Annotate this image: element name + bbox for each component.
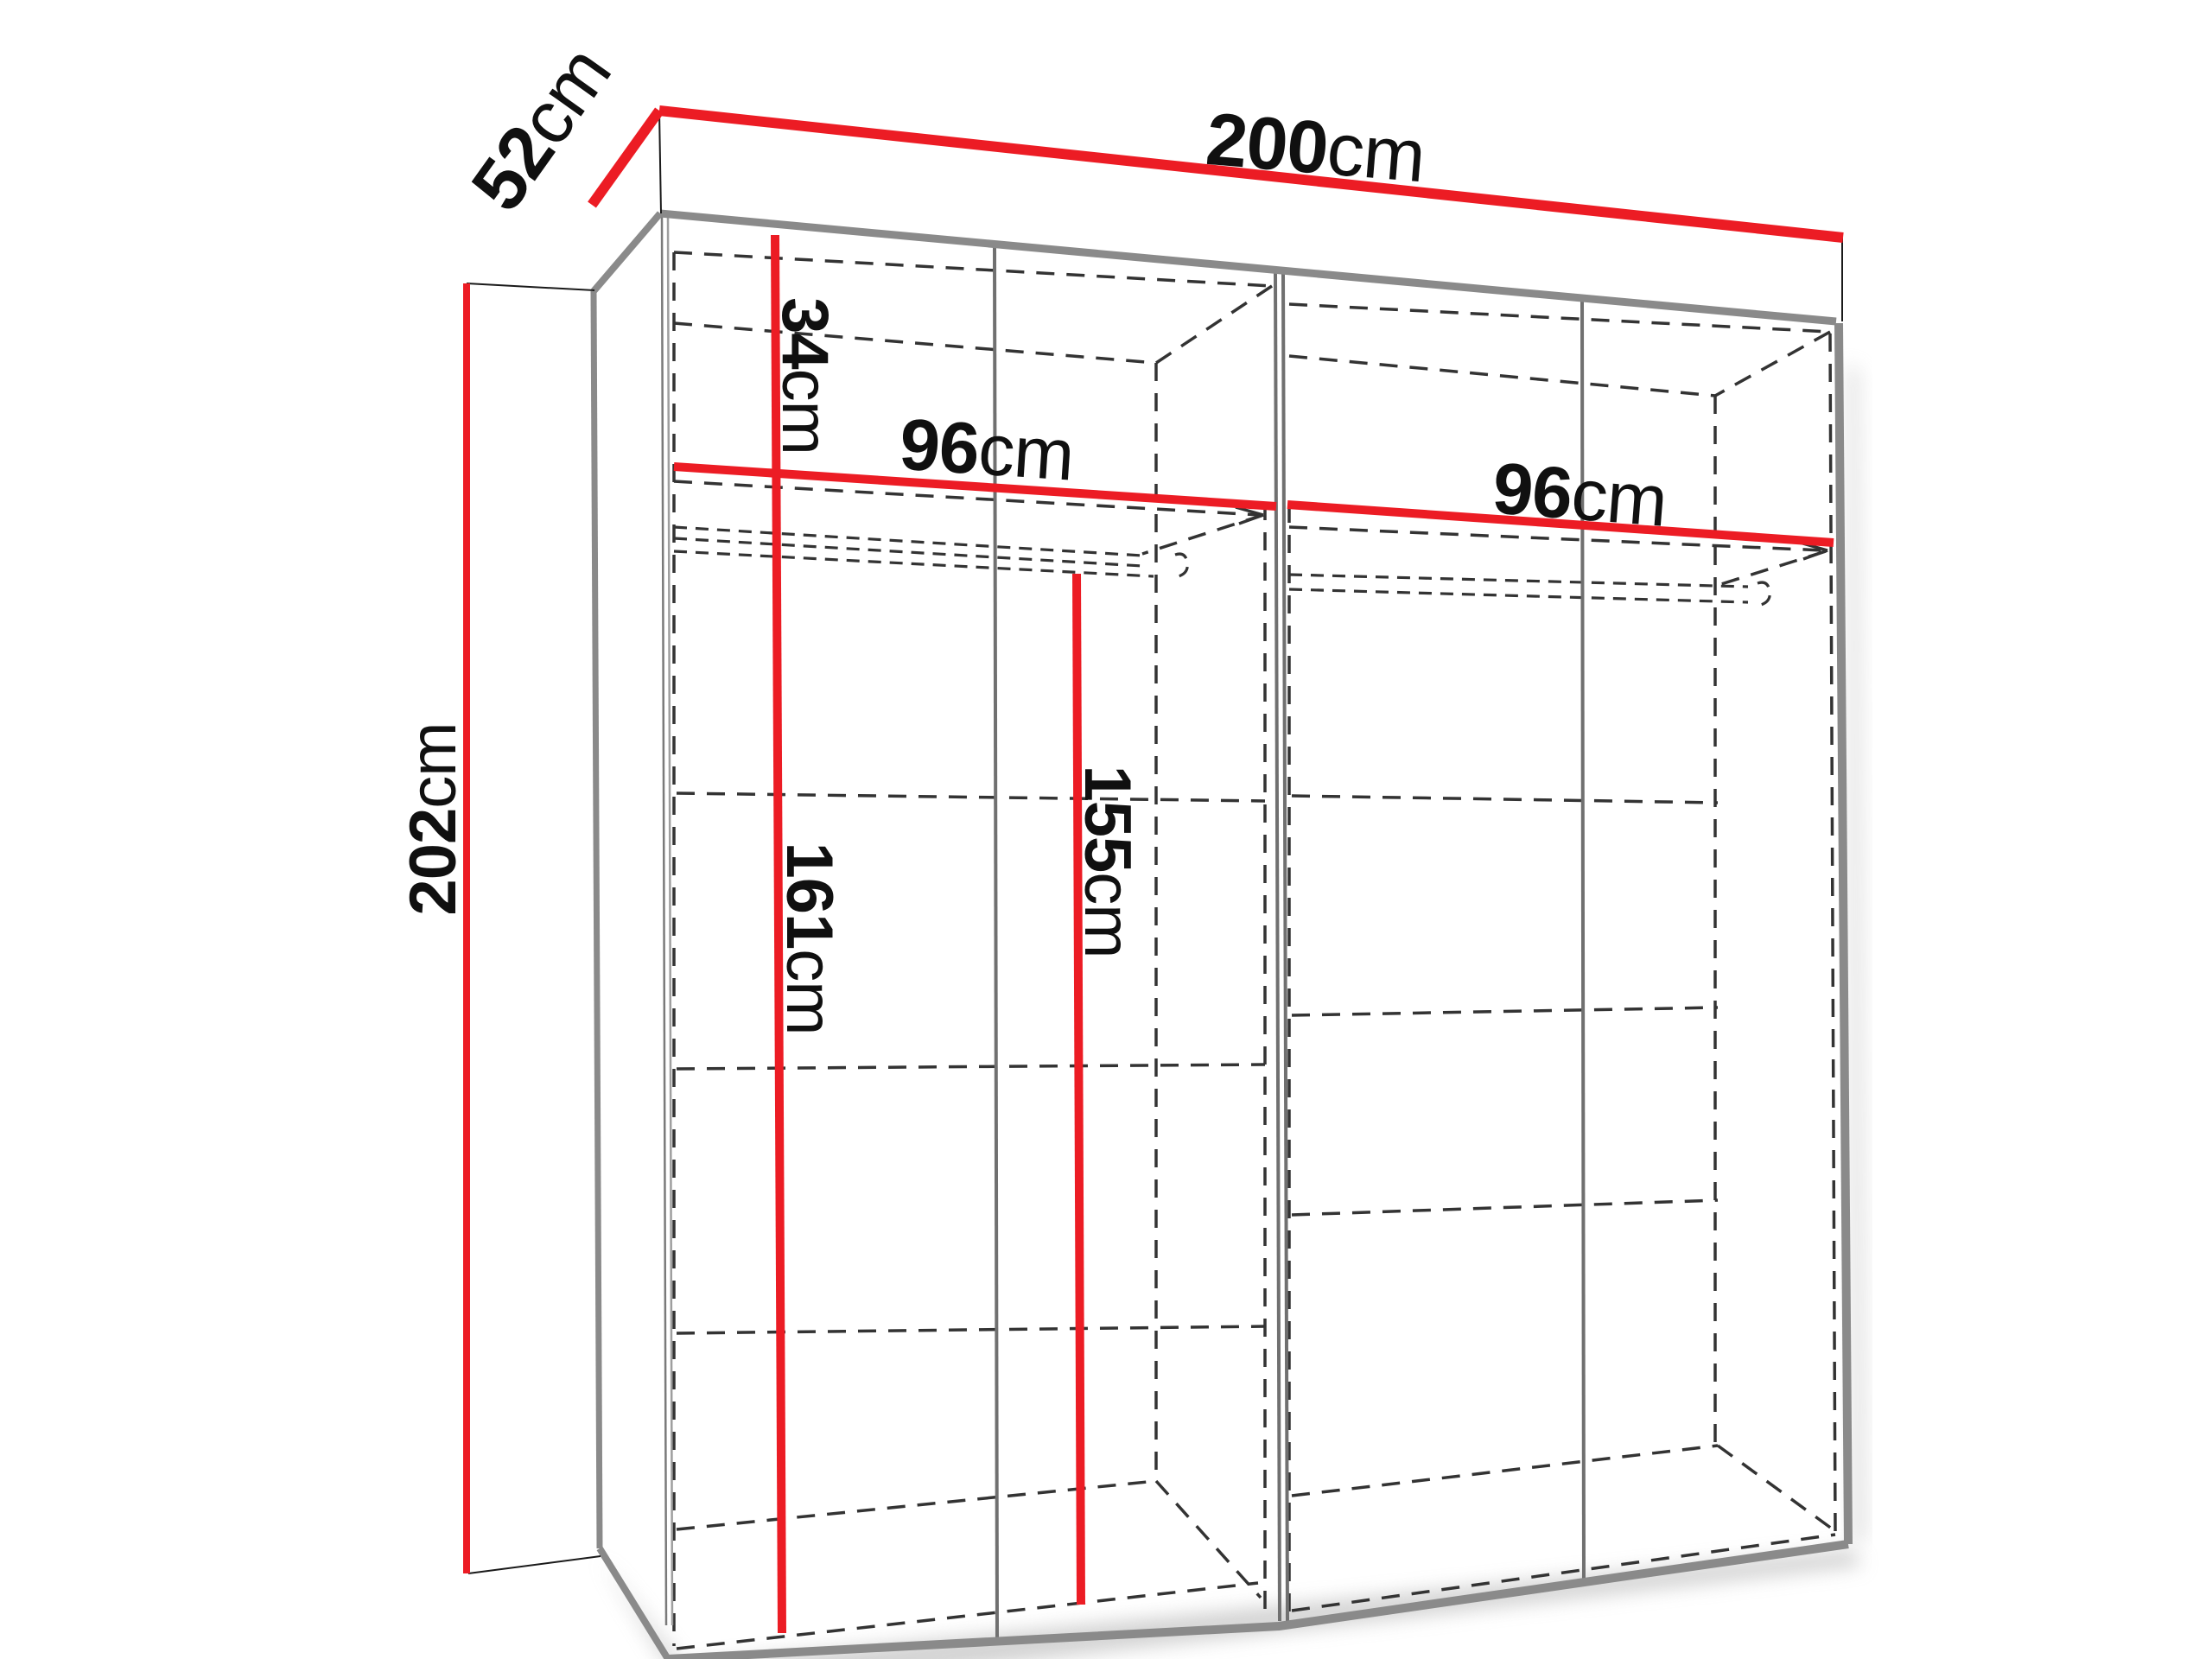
hidden-shelf-line [677, 1326, 1265, 1333]
hidden-floor-back-right [1292, 1446, 1718, 1496]
wardrobe-dimension-diagram: 200cm 52cm 202cm 96cm 96cm 34cm 161cm 15… [0, 0, 2212, 1659]
hidden-wall-vertical-right [1830, 334, 1835, 1531]
left-wall-inner-edge [662, 217, 666, 1625]
hidden-shelf-line [677, 793, 1265, 801]
hidden-ceiling-front-left [674, 252, 1272, 286]
hanging-rail-right-line2 [1289, 589, 1748, 602]
front-right-edge [1839, 323, 1848, 1544]
label-height-202cm: 202cm [397, 722, 470, 915]
top-left-depth-edge [594, 213, 660, 291]
left-wall-inner-edge-highlight [668, 217, 672, 1625]
witness-height-top [467, 283, 594, 290]
dim-line-rail-155 [1077, 574, 1081, 1605]
hidden-ceiling-back-left [674, 323, 1156, 363]
center-divider-edge-right [1283, 273, 1287, 1621]
rail-hook-left-icon [1175, 554, 1187, 576]
hidden-floor-depth-diagonal-left [1156, 1481, 1261, 1598]
hanging-rail-right-line1 [1289, 575, 1748, 587]
hidden-shelf-depth-diagonal-right [1721, 551, 1826, 584]
hanging-rail-left-line3 [674, 551, 1154, 576]
hidden-ceiling-corner-diagonal-left [1156, 286, 1272, 363]
hidden-shelf-line [1292, 1200, 1718, 1215]
dim-line-depth-52 [592, 111, 659, 205]
hidden-shelf-line [1292, 1007, 1718, 1015]
label-rail-height-155cm: 155cm [1071, 765, 1144, 957]
hidden-ceiling-back-right [1289, 356, 1715, 396]
center-divider-edge-left [1275, 273, 1280, 1621]
hidden-shelf-line [677, 1065, 1265, 1069]
bottom-front-edge [668, 1544, 1848, 1659]
hidden-ceiling-front-right [1289, 304, 1830, 332]
witness-height-bottom [468, 1556, 601, 1573]
dimension-labels: 200cm 52cm 202cm 96cm 96cm 34cm 161cm 15… [397, 32, 1669, 1034]
label-width-200cm: 200cm [1203, 98, 1427, 198]
rail-hook-right-icon [1758, 582, 1770, 605]
hidden-ceiling-corner-diagonal-right [1715, 332, 1830, 396]
diagram-canvas: 200cm 52cm 202cm 96cm 96cm 34cm 161cm 15… [0, 0, 2212, 1659]
hidden-shelf-line [1292, 796, 1718, 803]
label-left-width-96cm: 96cm [897, 403, 1076, 495]
front-left-edge [594, 291, 600, 1548]
witness-top-left [659, 111, 661, 213]
label-top-shelf-34cm: 34cm [768, 297, 842, 454]
label-right-width-96cm: 96cm [1490, 447, 1669, 542]
hidden-floor-depth-diagonal-right [1718, 1446, 1835, 1531]
plinth-left-edge [600, 1548, 668, 1659]
label-interior-height-161cm: 161cm [772, 842, 846, 1034]
